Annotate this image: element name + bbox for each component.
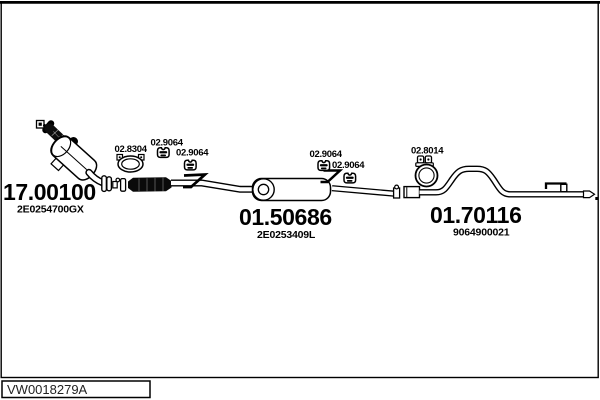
outlet-flange-ring-icon: [107, 177, 112, 191]
pipe-clamp-icon: [117, 155, 144, 173]
flex-pipe-icon: [128, 177, 172, 192]
front-flex-pipe-drawing: [113, 177, 256, 192]
drawing-number: VW0018279A: [7, 382, 88, 397]
part-number-clamp-rear: 02.8014: [411, 146, 444, 157]
part-number-catalyst: 17.00100: [3, 179, 96, 205]
ring-clamp-icon: [416, 156, 438, 187]
part-number-clamp-front: 02.8304: [115, 144, 148, 155]
part-number-silencer: 01.50686: [239, 204, 332, 230]
drawing-number-box: VW0018279A: [2, 381, 150, 398]
rubber-hanger-icon: [185, 160, 197, 170]
rubber-hanger-icon: [344, 173, 356, 183]
part-number-rear-pipe: 01.70116: [430, 202, 521, 228]
rubber-hanger-icon: [318, 161, 330, 171]
part-number-hanger-mid-2: 02.9064: [332, 160, 365, 171]
oem-code-silencer: 2E0253409L: [257, 229, 316, 241]
part-number-hanger-front-2: 02.9064: [176, 148, 209, 159]
exhaust-diagram-canvas: 17.00100 2E0254700GX 01.50686 2E0253409L…: [0, 0, 600, 400]
part-number-hanger-mid-1: 02.9064: [310, 149, 343, 160]
inlet-flange-bolt-icon: [39, 123, 42, 126]
oem-code-rear-pipe: 9064900021: [453, 227, 510, 239]
oem-code-catalyst: 2E0254700GX: [17, 204, 84, 216]
outlet-flange-ring-icon: [102, 176, 107, 192]
rubber-hanger-icon: [158, 148, 170, 158]
tailpipe-tip-icon: [584, 191, 595, 198]
exhaust-diagram-page: 17.00100 2E0254700GX 01.50686 2E0253409L…: [0, 0, 600, 400]
